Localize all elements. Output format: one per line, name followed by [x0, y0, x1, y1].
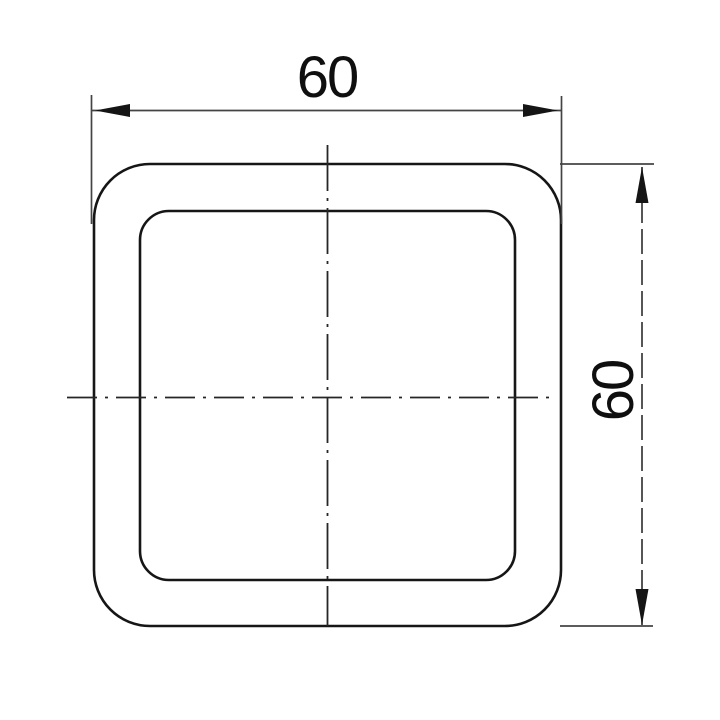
- square-tube-section-drawing: 60 60: [0, 0, 720, 720]
- width-arrow-left-icon: [95, 104, 130, 117]
- width-dimension-label: 60: [297, 45, 358, 110]
- height-dimension-label: 60: [581, 361, 646, 422]
- height-arrow-up-icon: [636, 167, 649, 203]
- height-arrow-down-icon: [636, 589, 649, 625]
- technical-drawing-canvas: 60 60: [0, 0, 720, 720]
- width-arrow-right-icon: [523, 104, 558, 117]
